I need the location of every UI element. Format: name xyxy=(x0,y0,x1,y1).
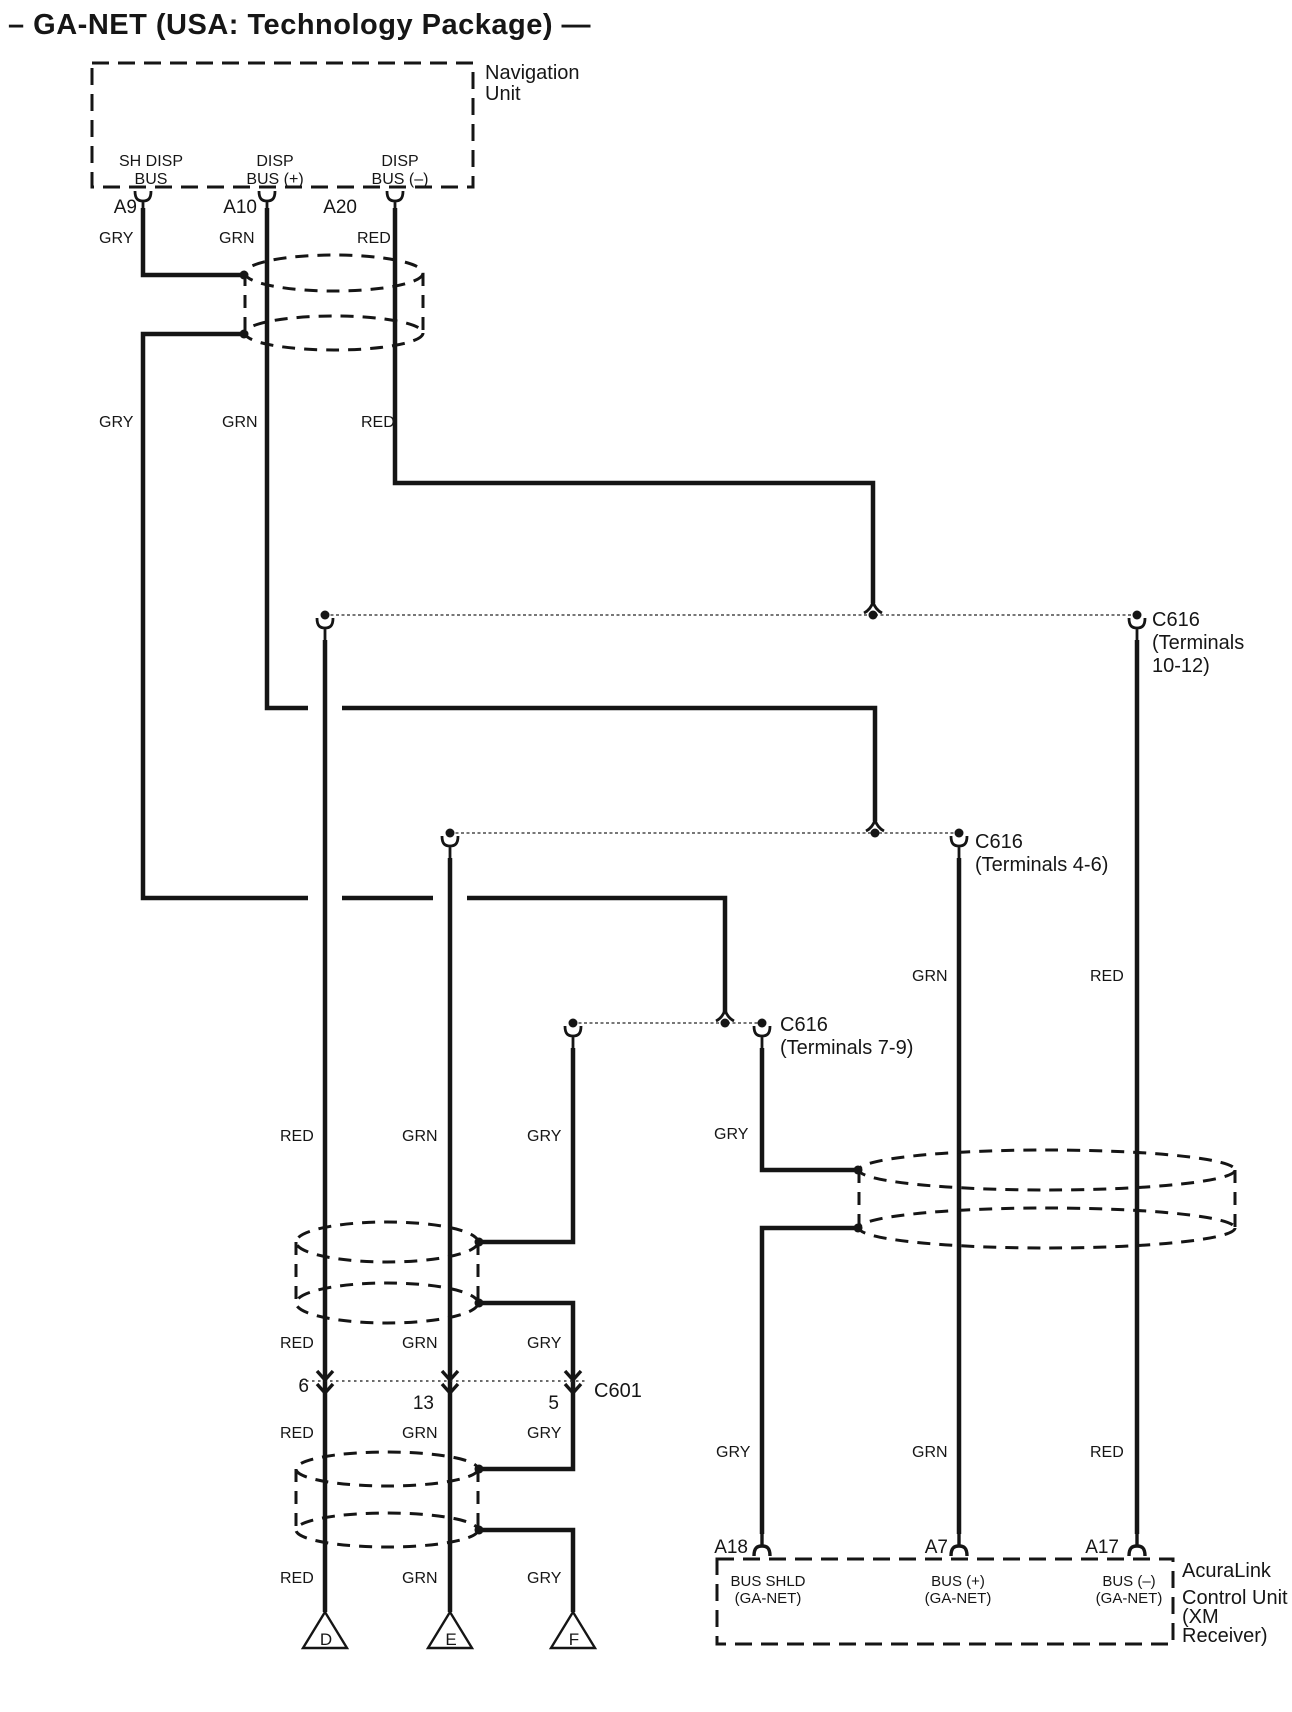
wire-gry-left-shield2-to-shield3 xyxy=(482,1303,573,1469)
junction-dot xyxy=(240,271,249,280)
pin-label-a18: A18 xyxy=(714,1537,748,1558)
acuralink-label-line1: AcuraLink xyxy=(1182,1560,1272,1582)
acuralink-bus-shld-line2: (GA-NET) xyxy=(735,1590,802,1607)
junction-dot xyxy=(475,1238,484,1247)
acuralink-label-line4: Receiver) xyxy=(1182,1625,1268,1647)
wire-gry-left-to-shield2 xyxy=(482,1048,573,1242)
acuralink-bus-plus-line1: BUS (+) xyxy=(931,1573,985,1590)
shield-cylinder-4-top xyxy=(859,1150,1235,1190)
female-terminal-icon-c616-7-9-left xyxy=(565,1026,581,1049)
female-terminal-icon-c616-10-12-right xyxy=(1129,618,1145,641)
wire-label-red-2: RED xyxy=(361,414,395,431)
junction-dot xyxy=(321,611,330,620)
nav-bus-label-disp-minus2: BUS (–) xyxy=(372,171,429,188)
junction-dot xyxy=(758,1019,767,1028)
junction-dot xyxy=(869,611,878,620)
c601-pin-label-5: 5 xyxy=(548,1393,559,1414)
shield-cylinder-4-walls xyxy=(859,1170,1235,1228)
pin-label-a17: A17 xyxy=(1085,1537,1119,1558)
wire-label-gry-bottom: GRY xyxy=(527,1570,562,1587)
wire-label-gry-2: GRY xyxy=(99,414,134,431)
nav-bus-label-sh-disp2: BUS xyxy=(135,171,168,188)
connector-label-c616-10-12-line3: 10-12) xyxy=(1152,655,1210,677)
wire-label-red-above-c601: RED xyxy=(280,1335,314,1352)
wire-label-grn-left-mid: GRN xyxy=(402,1128,438,1145)
acuralink-bus-minus-line2: (GA-NET) xyxy=(1096,1590,1163,1607)
female-terminal-icon-c616-4-6-right xyxy=(951,836,967,859)
junction-dot xyxy=(854,1166,863,1175)
wire-label-red-right-upper: RED xyxy=(1090,968,1124,985)
wire-label-grn-1: GRN xyxy=(219,230,255,247)
pin-label-a20: A20 xyxy=(323,197,357,218)
wire-label-gry-above-c601: GRY xyxy=(527,1335,562,1352)
junction-dot xyxy=(1133,611,1142,620)
c601-pin-label-13: 13 xyxy=(413,1393,434,1414)
nav-bus-label-disp-minus: DISP xyxy=(381,153,418,170)
nav-bus-label-sh-disp: SH DISP xyxy=(119,153,183,170)
wire-label-grn-above-c601: GRN xyxy=(402,1335,438,1352)
acuralink-bus-plus-line2: (GA-NET) xyxy=(925,1590,992,1607)
c601-pin-label-6: 6 xyxy=(298,1376,309,1397)
connector-label-c616-7-9-line1: C616 xyxy=(780,1014,828,1036)
ga-net-wiring-diagram: – GA-NET (USA: Technology Package) — Nav… xyxy=(0,0,1292,1712)
terminal-letter-f: F xyxy=(569,1630,579,1649)
wire-label-grn-below-c601: GRN xyxy=(402,1425,438,1442)
wire-grn-horizontal-to-c616 xyxy=(342,708,875,821)
wire-label-grn-right-lower: GRN xyxy=(912,1444,948,1461)
junction-dot xyxy=(569,1019,578,1028)
acuralink-bus-shld-line1: BUS SHLD xyxy=(730,1573,805,1590)
wire-label-red-right-lower: RED xyxy=(1090,1444,1124,1461)
wire-grn-a10-down xyxy=(267,208,308,708)
junction-dot xyxy=(854,1224,863,1233)
wire-label-red-1: RED xyxy=(357,230,391,247)
connector-label-c616-7-9-line2: (Terminals 7-9) xyxy=(780,1037,913,1059)
wire-label-red-left-mid: RED xyxy=(280,1128,314,1145)
male-pin-icon-a18 xyxy=(754,1532,770,1556)
shield-cylinder-4-bottom xyxy=(859,1208,1235,1248)
junction-dot xyxy=(240,330,249,339)
wire-label-gry-left-mid: GRY xyxy=(527,1128,562,1145)
male-pin-icon-a7 xyxy=(951,1532,967,1556)
wire-label-grn-2: GRN xyxy=(222,414,258,431)
wire-label-gry-below-c601: GRY xyxy=(527,1425,562,1442)
wire-gry-horizontal-to-c616 xyxy=(467,898,725,1012)
wire-label-red-below-c601: RED xyxy=(280,1425,314,1442)
wire-gry-right-shield4-to-a18 xyxy=(762,1228,854,1534)
junction-dot xyxy=(871,829,880,838)
male-pin-icon-a17 xyxy=(1129,1532,1145,1556)
connector-label-c616-4-6-line1: C616 xyxy=(975,831,1023,853)
wire-gry-right-to-shield4 xyxy=(762,1048,854,1170)
junction-dot xyxy=(721,1019,730,1028)
nav-bus-label-disp-plus: DISP xyxy=(256,153,293,170)
navigation-unit-label-line2: Unit xyxy=(485,83,521,105)
wire-label-red-bottom: RED xyxy=(280,1570,314,1587)
pin-label-a9: A9 xyxy=(114,197,137,218)
wire-label-grn-bottom: GRN xyxy=(402,1570,438,1587)
female-terminal-icon-c616-4-6-left xyxy=(442,836,458,859)
wiring-diagram-page: – GA-NET (USA: Technology Package) — Nav… xyxy=(0,0,1292,1712)
female-terminal-icon-c616-7-9-right xyxy=(754,1026,770,1049)
page-title: – GA-NET (USA: Technology Package) — xyxy=(8,9,591,41)
junction-dot xyxy=(475,1299,484,1308)
navigation-unit-label-line1: Navigation xyxy=(485,62,580,84)
terminal-letter-d: D xyxy=(320,1630,332,1649)
acuralink-bus-minus-line1: BUS (–) xyxy=(1102,1573,1155,1590)
wire-red-a20-to-c616 xyxy=(395,208,873,603)
terminal-letter-e: E xyxy=(445,1630,456,1649)
pin-label-a7: A7 xyxy=(925,1537,948,1558)
wire-label-gry-right-lower: GRY xyxy=(716,1444,751,1461)
junction-dot xyxy=(475,1526,484,1535)
wire-label-gry-1: GRY xyxy=(99,230,134,247)
wire-label-gry-right: GRY xyxy=(714,1126,749,1143)
nav-bus-label-disp-plus2: BUS (+) xyxy=(246,171,303,188)
connector-label-c601: C601 xyxy=(594,1380,642,1402)
female-terminal-icon-c616-10-12-left xyxy=(317,618,333,641)
junction-dot xyxy=(955,829,964,838)
connector-label-c616-10-12-line2: (Terminals xyxy=(1152,632,1244,654)
connector-label-c616-10-12-line1: C616 xyxy=(1152,609,1200,631)
junction-dot xyxy=(475,1465,484,1474)
junction-dot xyxy=(446,829,455,838)
connector-label-c616-4-6-line2: (Terminals 4-6) xyxy=(975,854,1108,876)
pin-label-a10: A10 xyxy=(223,197,257,218)
wire-label-grn-right-upper: GRN xyxy=(912,968,948,985)
